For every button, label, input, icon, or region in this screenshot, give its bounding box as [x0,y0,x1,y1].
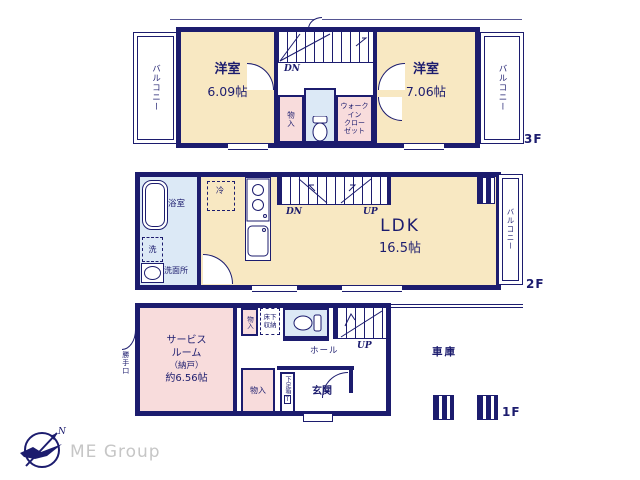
floor-1f-label: 1F [502,405,521,419]
compass-logo-icon: N [16,423,68,473]
balcony-3f-left: バルコニー [133,32,178,144]
service-room-1f-label: サービス ルーム （納戸） 約6.56帖 [165,334,207,386]
stairs-3f [278,32,373,63]
window [228,143,268,150]
floor-plan: バルコニー DN 物入 ウォーク イン クロー ゼット 洋室 6.09帖 [0,0,640,480]
ldk-label: LDK 16.5帖 [345,216,455,258]
brand-text: ME Group [70,442,161,462]
laundry-spot: 洗 [142,237,163,262]
entrance-step [303,414,333,422]
kitchen-2f [245,177,271,261]
bathtub-icon [142,180,168,230]
washroom-2f: 洗 洗面所 [140,234,197,285]
room-3f-left-label: 洋室 6.09帖 [181,62,274,100]
closet-1f-bottom: 物入 [241,368,275,413]
shoe-box: 下足箱 T [280,372,295,413]
wall [349,366,353,393]
entrance-label: 玄関 [297,386,347,399]
toilet-room-3f [304,88,336,143]
stairs-3f-dn-label: DN [284,64,300,74]
fridge-spot: 冷 [207,181,235,211]
toilet-icon [291,313,323,333]
walk-in-closet-3f-label: ウォーク イン クロー ゼット [341,102,369,136]
shoe-box-label: 下足箱 [283,376,292,394]
garage-label: 車庫 [432,346,457,359]
underfloor-storage-label: 床下 収納 [264,314,277,330]
wall [277,366,354,370]
walk-in-closet-3f: ウォーク イン クロー ゼット [336,95,373,143]
window [342,285,402,292]
stairs-1f [337,308,386,339]
louver-block-2f [477,177,495,204]
door-arc-back-door [122,330,136,350]
garage-pillar [477,395,498,420]
wall [283,338,329,341]
svg-text:N: N [57,427,67,437]
hall-label: ホール [310,346,339,357]
shoe-box-tag: T [284,395,292,404]
toilet-icon [311,116,329,142]
stairs-1f-up-label: UP [357,341,372,351]
closet-1f-bottom-label: 物入 [250,385,266,396]
wall [387,177,391,205]
back-door-label: 勝手口 [121,351,130,375]
bathroom-2f-label: 浴室 [168,199,185,210]
window [404,143,444,150]
balcony-3f-left-label: バルコニー [150,64,162,112]
underfloor-storage: 床下 収納 [260,308,280,335]
kitchen-icons [246,178,270,260]
washroom-2f-label: 洗面所 [164,266,188,276]
stairs-2f [281,177,387,205]
fridge-label: 冷 [216,186,224,196]
garage-pillar [433,395,454,420]
window [252,285,297,292]
stairs-2f-dn-label: DN [286,207,302,217]
toilet-room-1f [283,308,329,338]
roof-line [170,19,522,20]
wall [197,177,201,285]
closet-3f: 物入 [278,95,304,143]
service-room-1f: サービス ルーム （納戸） 約6.56帖 [140,308,237,411]
closet-3f-label: 物入 [286,111,297,128]
stairs-2f-lines [281,177,387,205]
closet-1f-top-label: 物入 [245,316,255,329]
floor-3f-label: 3F [524,132,543,146]
floor-2f-label: 2F [526,277,545,291]
closet-1f-top: 物入 [241,308,258,336]
room-3f-right-label: 洋室 7.06帖 [377,62,475,100]
sink-icon [141,263,164,283]
balcony-3f-right: バルコニー [480,32,524,144]
balcony-2f-label: バルコニー [505,208,516,251]
bathroom-2f: 浴室 [140,177,197,234]
balcony-2f: バルコニー [498,174,523,285]
garage-edge-line [391,304,523,308]
balcony-3f-right-label: バルコニー [496,64,508,112]
stairs-3f-lines [278,32,373,63]
stairs-1f-lines [337,308,386,339]
